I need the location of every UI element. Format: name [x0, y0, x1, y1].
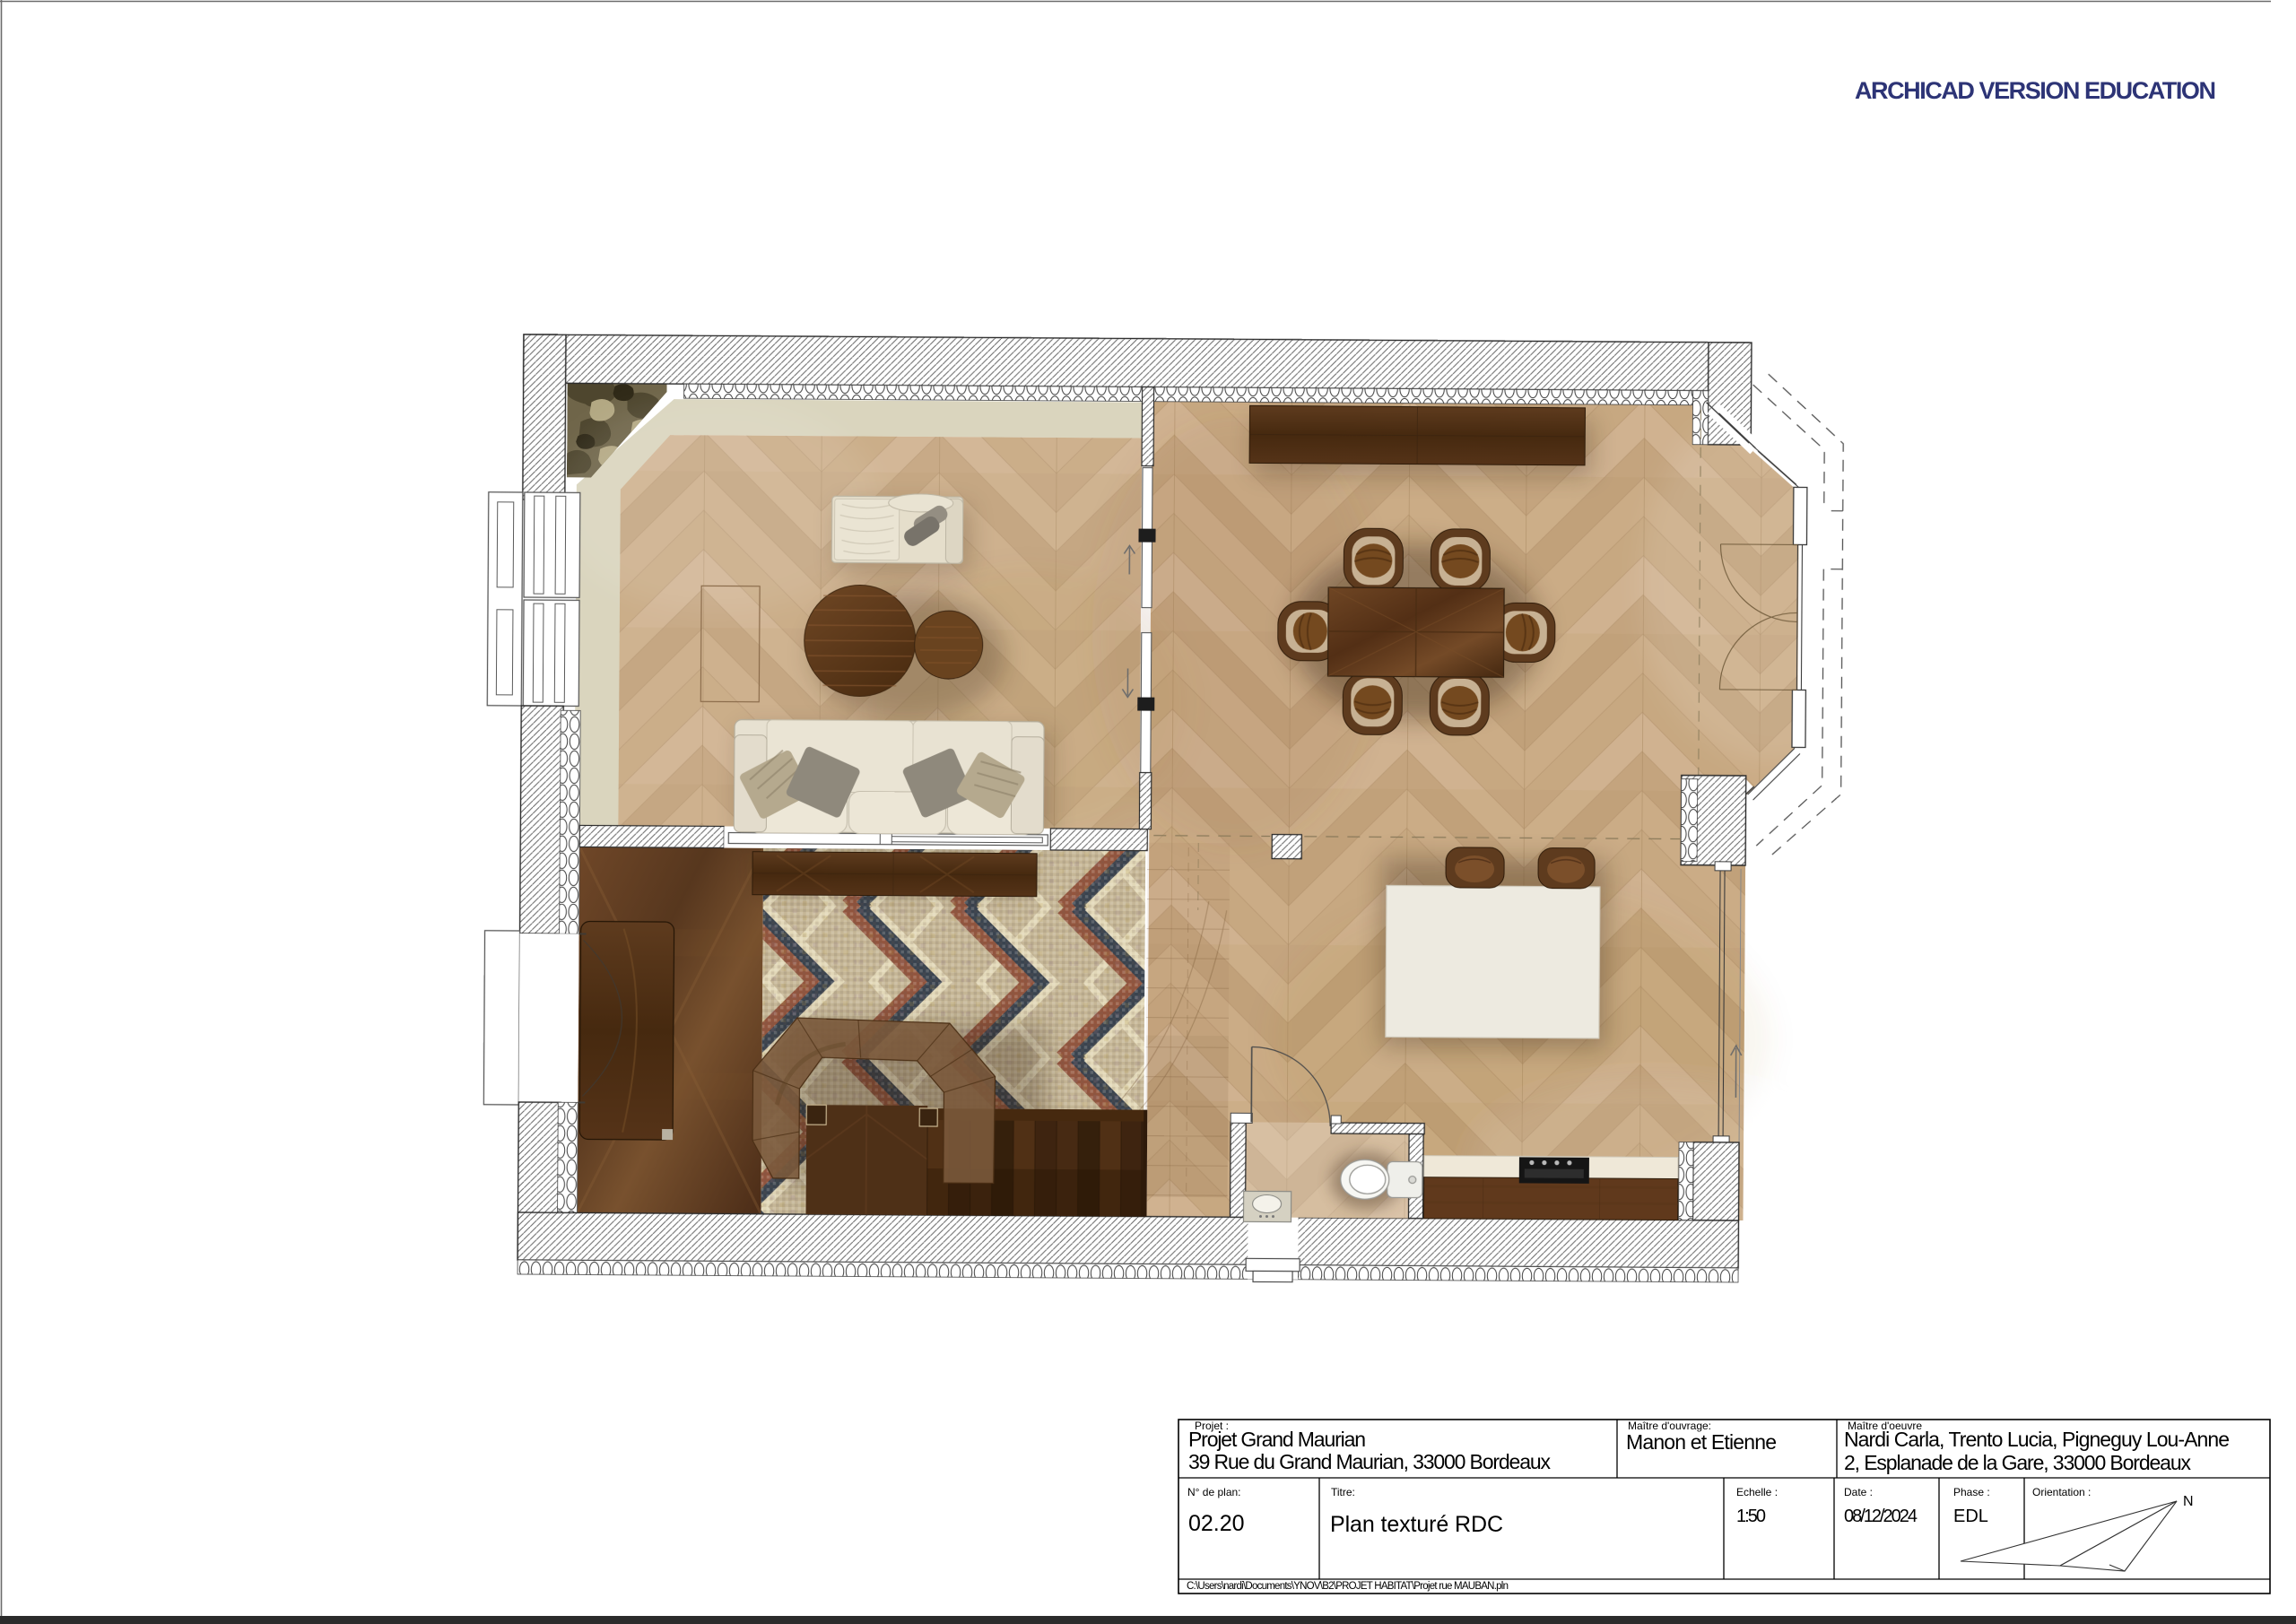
svg-text:1:50: 1:50: [1736, 1507, 1766, 1526]
svg-text:Projet Grand Maurian: Projet Grand Maurian: [1188, 1428, 1366, 1451]
svg-text:Titre:: Titre:: [1331, 1486, 1355, 1498]
svg-text:EDL: EDL: [1953, 1507, 1988, 1526]
svg-text:08/12/2024: 08/12/2024: [1844, 1507, 1918, 1526]
svg-text:N: N: [2183, 1494, 2194, 1509]
svg-text:2, Esplanade de la Gare, 33000: 2, Esplanade de la Gare, 33000 Bordeaux: [1844, 1451, 2192, 1474]
svg-text:39 Rue du Grand Maurian, 33000: 39 Rue du Grand Maurian, 33000 Bordeaux: [1188, 1450, 1552, 1473]
svg-text:Echelle :: Echelle :: [1736, 1486, 1778, 1498]
svg-text:Orientation :: Orientation :: [2032, 1486, 2091, 1498]
svg-text:N° de plan:: N° de plan:: [1187, 1486, 1241, 1498]
svg-text:Nardi Carla, Trento Lucia, Pig: Nardi Carla, Trento Lucia, Pigneguy Lou-…: [1844, 1428, 2230, 1451]
svg-text:02.20: 02.20: [1188, 1511, 1245, 1536]
svg-text:Plan texturé RDC: Plan texturé RDC: [1330, 1512, 1503, 1537]
svg-text:Phase :: Phase :: [1953, 1486, 1990, 1498]
svg-text:C:\Users\nardi\Documents\YNOV\: C:\Users\nardi\Documents\YNOV\B2\PROJET …: [1187, 1581, 1509, 1592]
svg-text:ARCHICAD VERSION EDUCATION: ARCHICAD VERSION EDUCATION: [1855, 77, 2216, 104]
svg-text:Manon et Etienne: Manon et Etienne: [1626, 1430, 1777, 1454]
svg-text:Date :: Date :: [1844, 1486, 1873, 1498]
